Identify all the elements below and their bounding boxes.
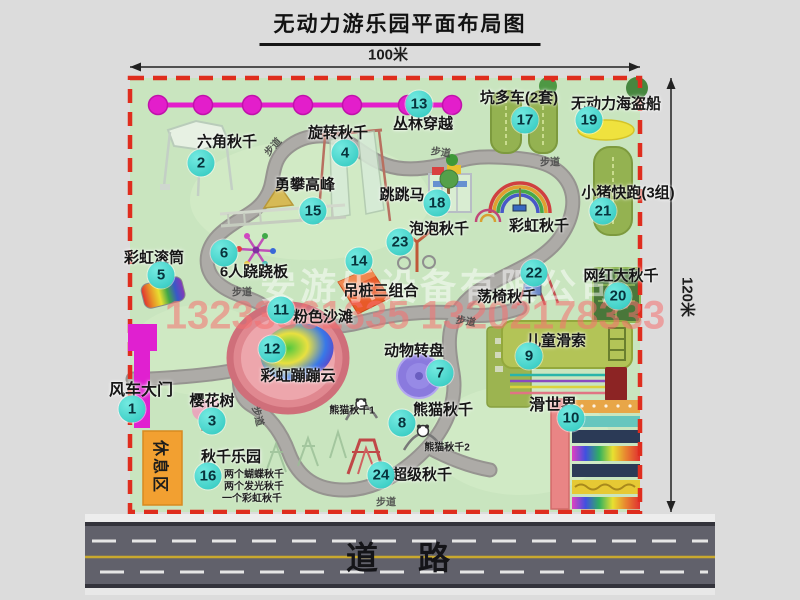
attraction-badge-12: 12 (259, 336, 286, 363)
page-title: 无动力游乐园平面布局图 (260, 8, 541, 46)
attraction-label-17: 坑多车(2套) (480, 87, 558, 108)
attraction-badge-6: 6 (211, 240, 238, 267)
rest-area-label: 休息区 (150, 440, 174, 494)
attraction-label-4: 旋转秋千 (308, 122, 368, 143)
attraction-badge-10: 10 (558, 405, 585, 432)
walkway-label: 步道 (430, 142, 452, 160)
attraction-badge-22: 22 (521, 260, 548, 287)
road-label: 道 路 (346, 533, 454, 579)
attraction-label-14: 吊桩三组合 (343, 280, 418, 301)
walkway-label: 步道 (232, 284, 252, 299)
attraction-label-7: 动物转盘 (384, 340, 444, 361)
attraction-badge-16: 16 (195, 463, 222, 490)
attraction-badge-8: 8 (389, 410, 416, 437)
attraction-badge-5: 5 (148, 262, 175, 289)
attraction-badge-19: 19 (576, 107, 603, 134)
attraction-badge-23: 23 (387, 229, 414, 256)
attraction-badge-1: 1 (119, 396, 146, 423)
attraction-label-8: 熊猫秋千 (413, 399, 473, 420)
attraction-badge-3: 3 (199, 408, 226, 435)
attraction-badge-9: 9 (516, 343, 543, 370)
walkway-label: 步道 (540, 154, 560, 169)
sub-label: 熊猫秋千2 (424, 439, 470, 454)
attraction-label-1: 风车大门 (109, 376, 173, 400)
attraction-badge-7: 7 (427, 360, 454, 387)
sub-label: 熊猫秋千1 (329, 402, 375, 417)
attraction-badge-4: 4 (332, 140, 359, 167)
dimension-top-label: 100米 (368, 44, 408, 65)
attraction-badge-17: 17 (512, 107, 539, 134)
sub-label: 一个彩虹秋千 (222, 490, 282, 505)
attraction-badge-11: 11 (268, 297, 295, 324)
attraction-badge-21: 21 (590, 198, 617, 225)
attraction-badge-13: 13 (406, 91, 433, 118)
attraction-label-24: 彩虹秋千 (509, 215, 569, 236)
attraction-label-11: 粉色沙滩 (293, 306, 353, 327)
attraction-badge-15: 15 (300, 198, 327, 225)
attraction-label-12: 彩虹蹦蹦云 (260, 365, 335, 386)
walkway-label: 步道 (376, 494, 396, 509)
attraction-badge-18: 18 (424, 190, 451, 217)
walkway-label: 步道 (455, 311, 477, 329)
attraction-label-2: 六角秋千 (197, 131, 257, 152)
attraction-badge-24: 24 (368, 462, 395, 489)
park-layout-plan: 无动力游乐园平面布局图 100米 120米 安游乐设备有限公司 13233861… (0, 0, 800, 600)
attraction-label-23: 泡泡秋千 (409, 218, 469, 239)
attraction-label-15: 勇攀高峰 (275, 174, 335, 195)
attraction-label-22: 荡椅秋千 (477, 286, 537, 307)
dimension-right-label: 120米 (678, 277, 699, 317)
attraction-badge-20: 20 (605, 283, 632, 310)
attraction-label-24: 超级秋千 (392, 464, 452, 485)
attraction-label-18: 跳跳马 (379, 184, 424, 205)
attraction-badge-2: 2 (188, 150, 215, 177)
attraction-badge-14: 14 (346, 248, 373, 275)
